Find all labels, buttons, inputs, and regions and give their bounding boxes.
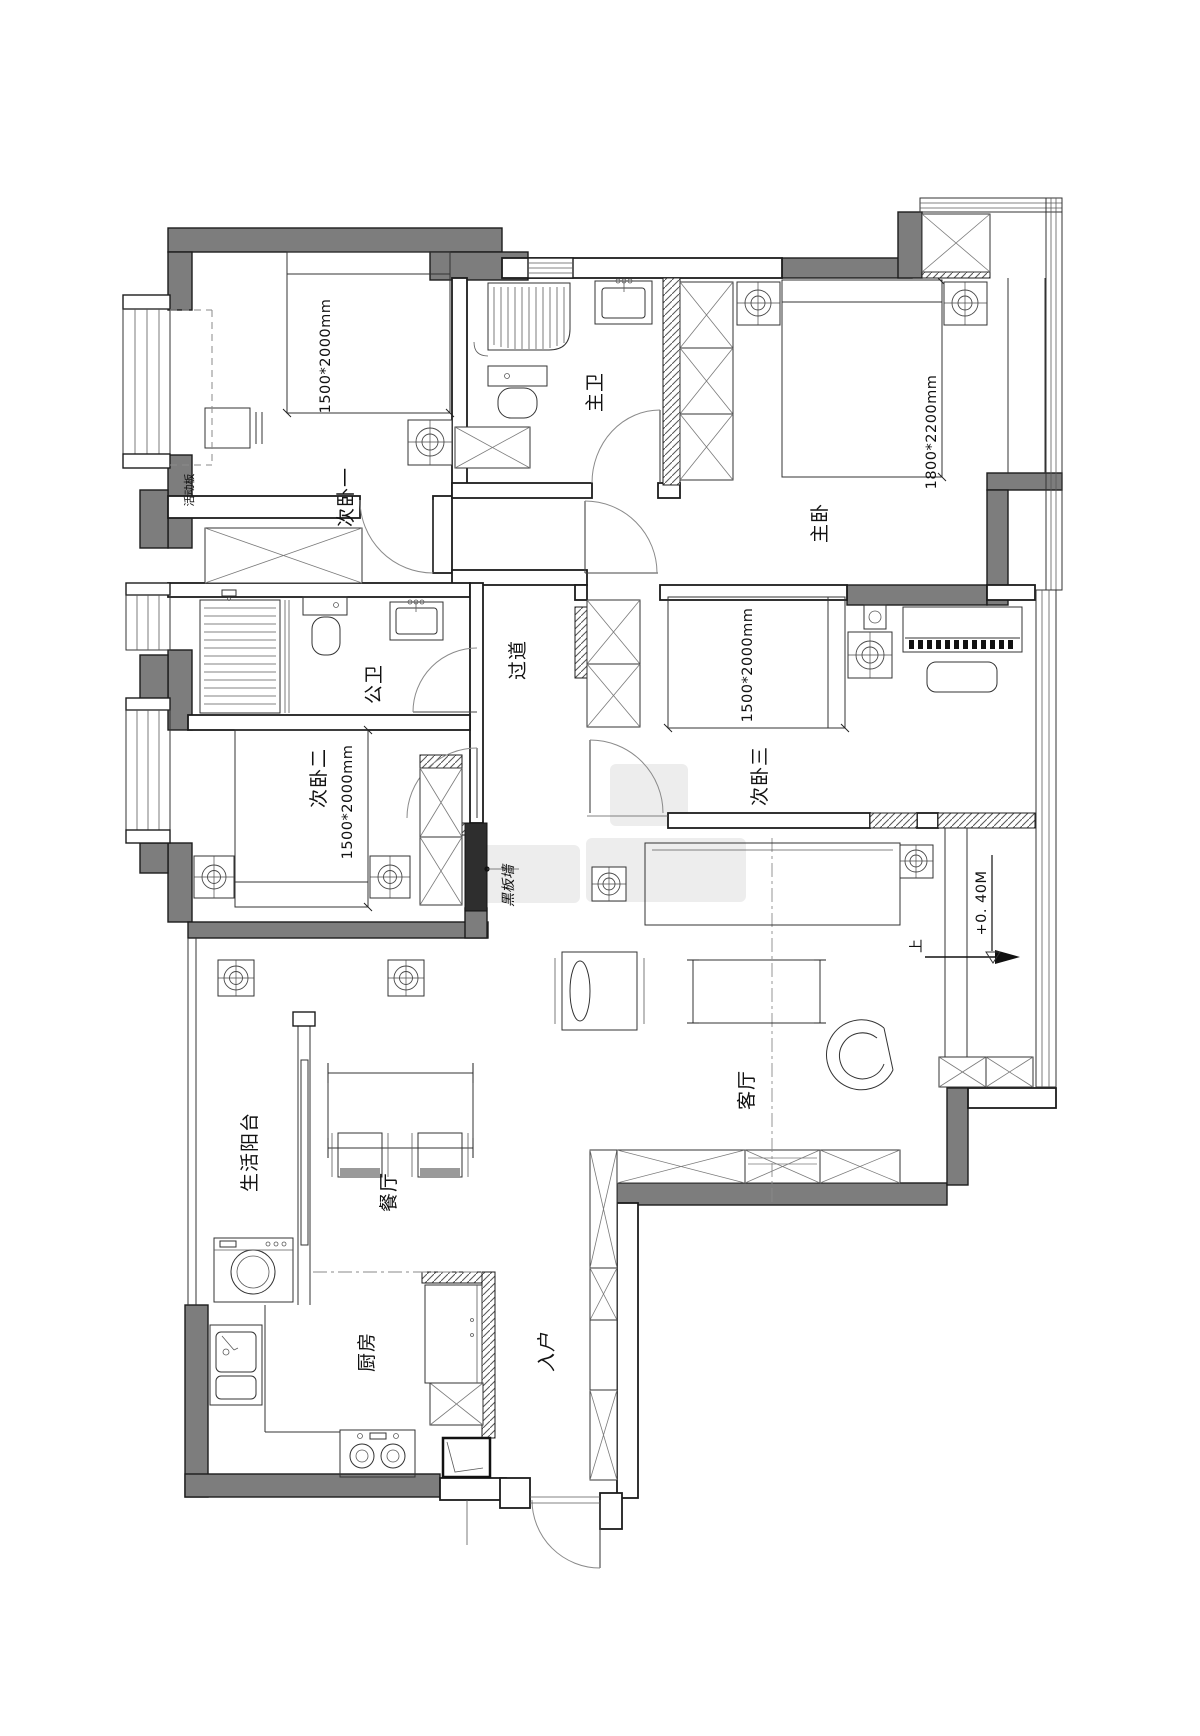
wall-box xyxy=(864,605,886,629)
door-entry xyxy=(467,1497,600,1568)
nightstand-lamp-right xyxy=(370,856,410,898)
bed xyxy=(668,597,845,728)
round-chair xyxy=(826,1020,893,1090)
label-bedroom3: 次卧三 xyxy=(749,746,771,806)
toilet xyxy=(488,366,547,418)
master-bedroom-furniture xyxy=(737,278,987,481)
label-service-balcony: 生活阳台 xyxy=(239,1112,261,1192)
top-balcony-cabinet xyxy=(922,214,990,272)
nightstand-lamp-left xyxy=(737,282,780,325)
entry-shoe-cabinet xyxy=(590,1150,617,1480)
label-master-bedroom: 主卧 xyxy=(809,503,831,543)
label-blackboard-wall: 黑板墙 xyxy=(501,863,517,907)
coffee-table xyxy=(693,960,820,1023)
hallway-cabinet xyxy=(455,427,530,468)
piano-bench xyxy=(927,662,997,692)
label-step-up: 上 xyxy=(909,939,925,953)
oven xyxy=(443,1438,490,1477)
bedroom2-wardrobe xyxy=(420,768,462,905)
washing-machine xyxy=(214,1238,293,1302)
downlight-1 xyxy=(592,867,626,901)
dim-bedroom3-bed: 1500*2000mm xyxy=(740,608,756,723)
step-arrow xyxy=(925,950,1020,964)
bed xyxy=(287,252,450,413)
bedroom3-furniture xyxy=(664,597,1022,732)
piano xyxy=(903,607,1022,692)
bedroom3-wardrobe xyxy=(587,600,640,727)
label-movable-panel: 活动板 xyxy=(182,474,196,507)
shower xyxy=(474,283,570,356)
label-entry: 入户 xyxy=(536,1332,558,1372)
label-bedroom2: 次卧二 xyxy=(308,748,330,808)
chair-2 xyxy=(412,1133,468,1177)
bedroom1-wardrobe xyxy=(205,528,362,583)
master-bathroom-fixtures xyxy=(474,279,652,418)
door-master-bathroom xyxy=(592,410,660,483)
label-living-room: 客厅 xyxy=(736,1070,758,1110)
nightstand-lamp-left xyxy=(194,856,234,898)
bed xyxy=(782,280,942,477)
master-closet xyxy=(680,282,733,480)
fridge-cabinet xyxy=(430,1383,483,1425)
label-hallway: 过道 xyxy=(507,640,529,680)
label-public-bathroom: 公卫 xyxy=(363,664,385,704)
armchair xyxy=(562,952,637,1030)
bedroom1-furniture xyxy=(170,252,454,465)
tv-cabinet xyxy=(617,1150,900,1183)
bedroom2-furniture xyxy=(194,726,410,911)
nightstand-lamp xyxy=(408,420,452,465)
sink xyxy=(390,600,443,640)
dim-bedroom1-bed: 1500*2000mm xyxy=(318,299,334,414)
dim-bedroom2-bed: 1500*2000mm xyxy=(340,745,356,860)
label-kitchen: 厨房 xyxy=(356,1332,378,1372)
label-floor-level: +0. 40M xyxy=(974,870,990,935)
floor-plan-drawing: 次卧一 1500*2000mm 活动板 主卫 主卧 1800*2200mm 公卫… xyxy=(0,0,1200,1736)
sink xyxy=(595,279,652,324)
shower xyxy=(200,590,289,713)
public-bathroom-fixtures xyxy=(200,590,443,713)
door-master-bedroom xyxy=(585,501,658,573)
nightstand-lamp xyxy=(848,632,892,678)
ceiling-lamp-1 xyxy=(218,960,254,996)
door-bedroom1 xyxy=(360,500,433,573)
door-public-bathroom xyxy=(413,648,477,712)
floor-plan-page: 次卧一 1500*2000mm 活动板 主卫 主卧 1800*2200mm 公卫… xyxy=(0,0,1200,1736)
toilet xyxy=(303,597,347,655)
nightstand-lamp-right xyxy=(944,282,987,325)
label-master-bathroom: 主卫 xyxy=(584,372,606,412)
sliding-door-leaf xyxy=(301,1060,308,1245)
label-dining-room: 餐厅 xyxy=(378,1172,400,1212)
fridge xyxy=(425,1285,482,1383)
dim-master-bed: 1800*2200mm xyxy=(924,375,940,490)
stove xyxy=(340,1430,415,1477)
blackboard-wall xyxy=(465,823,487,911)
step-planter xyxy=(939,1057,1033,1087)
kitchen-sink xyxy=(210,1325,262,1405)
downlight-2 xyxy=(900,845,933,878)
windows xyxy=(123,198,1062,1305)
label-bedroom1: 次卧一 xyxy=(335,467,357,527)
dining-table xyxy=(328,1073,473,1148)
chair-1 xyxy=(332,1133,388,1177)
ceiling-lamp-2 xyxy=(388,960,424,996)
